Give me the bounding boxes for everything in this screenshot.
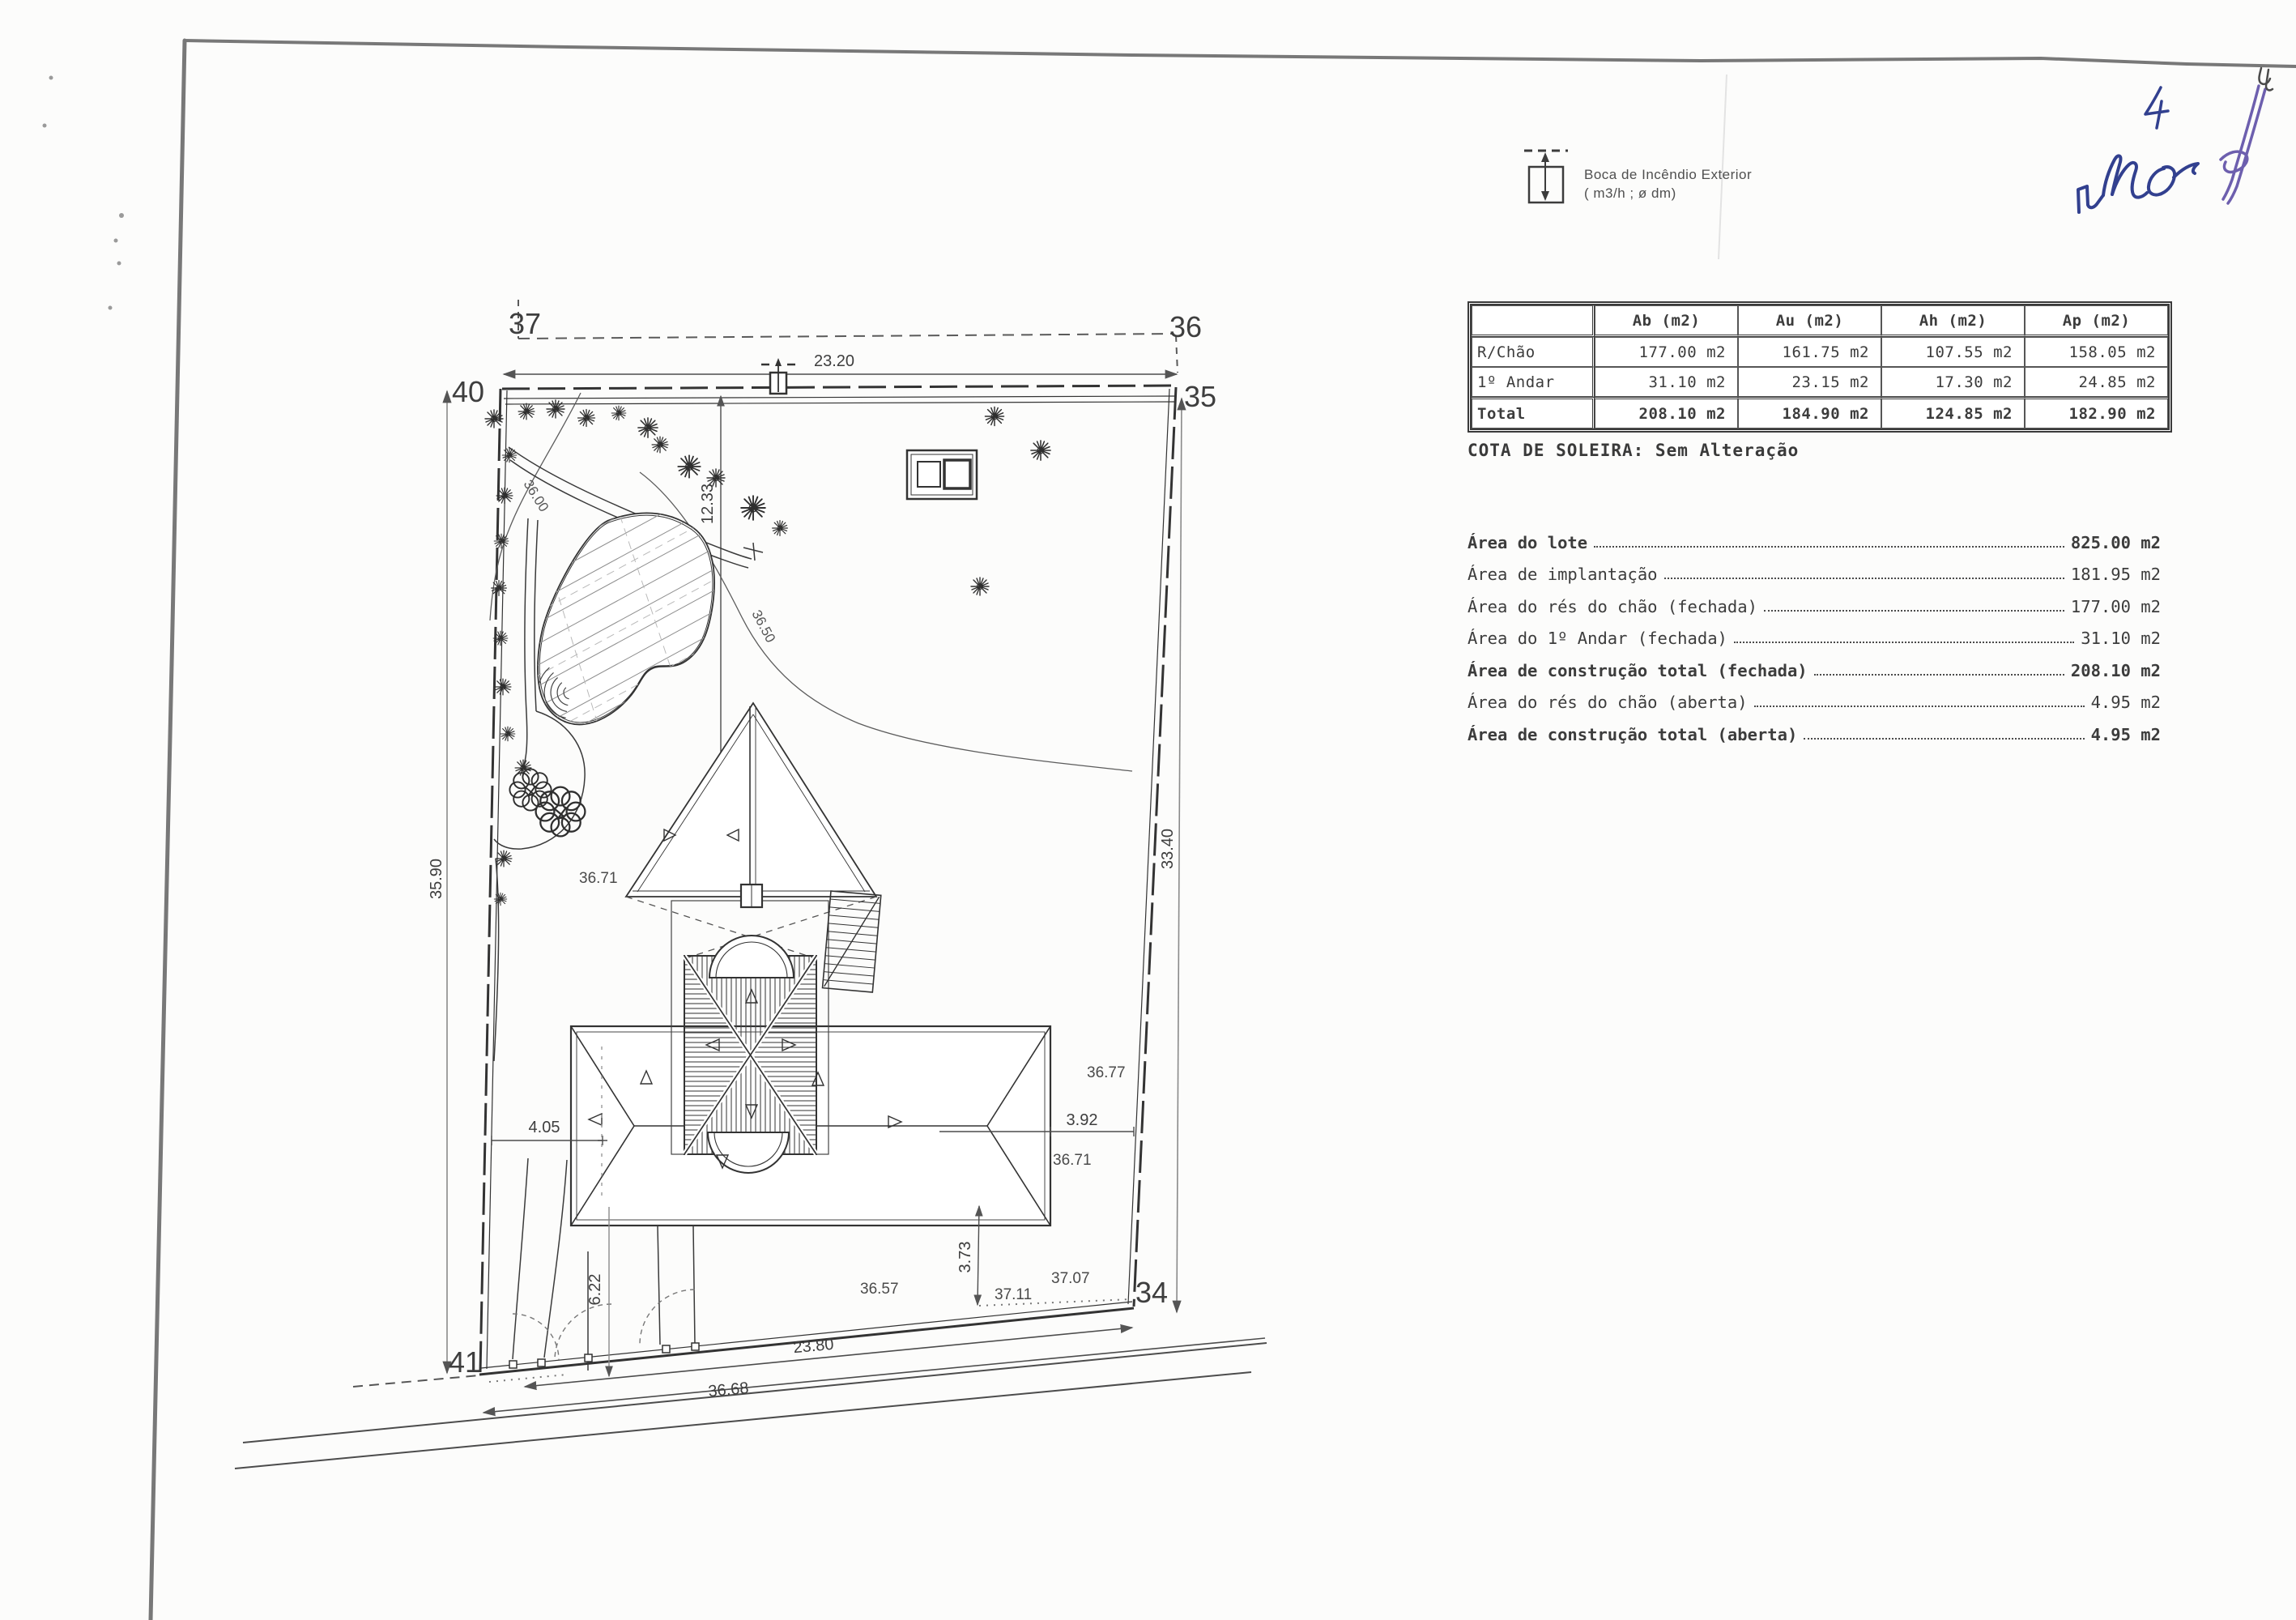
- area-label: Área do rés do chão (fechada): [1467, 597, 1757, 616]
- legend-line2: ( m3/h ; ø dm): [1584, 184, 1752, 202]
- spot-elevation: 36.77: [1087, 1064, 1126, 1081]
- dot-leader: [1734, 642, 2074, 643]
- dot-leader: [1594, 546, 2064, 548]
- dim-house-right: 3.92: [1067, 1111, 1098, 1129]
- dim-setback: 12.33: [699, 484, 717, 524]
- dim-left: 35.90: [428, 859, 445, 899]
- table-cell: 17.30 m2: [1881, 367, 2025, 397]
- area-value: 208.10 m2: [2071, 661, 2161, 680]
- area-label: Área do 1º Andar (fechada): [1467, 629, 1727, 648]
- table-header-cell: Au (m2): [1738, 305, 1881, 337]
- area-label: Área do lote: [1467, 533, 1587, 552]
- site-plan: 37 36 40 35 41 34 23.20 35.90 33.40 12.3…: [235, 300, 1267, 1469]
- dot-leader: [1804, 738, 2084, 740]
- dim-top: 23.20: [814, 352, 854, 370]
- area-value: 31.10 m2: [2081, 629, 2161, 648]
- area-label: Área de implantação: [1467, 565, 1658, 584]
- area-list-item: Área de implantação 181.95 m2: [1467, 552, 2161, 585]
- handwritten-marks: [2078, 68, 2273, 212]
- corner-label-41: 41: [449, 1345, 481, 1379]
- spot-elevation: 37.11: [995, 1286, 1032, 1303]
- tower-roof: [684, 956, 816, 1154]
- pen-corner-mark: [2259, 68, 2273, 90]
- table-cell: 107.55 m2: [1881, 337, 2025, 367]
- fire-hydrant-icon: [1524, 151, 1568, 202]
- dim-bottom: 23.80: [793, 1336, 835, 1358]
- table-header-cell: [1472, 305, 1595, 337]
- scanned-site-plan-page: { "page": { "background": "#fcfcfb", "pa…: [0, 0, 2296, 1620]
- contour-label-365: 36.50: [748, 607, 778, 645]
- table-cell: 158.05 m2: [2025, 337, 2168, 367]
- table-row-label: 1º Andar: [1472, 367, 1595, 397]
- spot-elevation: 36.57: [860, 1281, 899, 1298]
- dim-road: 36.68: [708, 1379, 750, 1401]
- table-header-cell: Ap (m2): [2025, 305, 2168, 337]
- staircase: [823, 891, 881, 992]
- area-label: Área do rés do chão (aberta): [1467, 693, 1748, 712]
- dot-leader: [1764, 610, 2064, 612]
- corner-label-36: 36: [1169, 310, 1202, 343]
- area-label: Área de construção total (fechada): [1467, 661, 1808, 680]
- area-value: 4.95 m2: [2091, 693, 2161, 712]
- area-list-item: Área de construção total (aberta) 4.95 m…: [1467, 712, 2161, 744]
- dot-leader: [1664, 578, 2064, 579]
- table-header-cell: Ah (m2): [1881, 305, 2025, 337]
- dim-house-bottom: 3.73: [956, 1242, 974, 1273]
- handwritten-note: [2078, 156, 2198, 212]
- table-row-label: Total: [1472, 397, 1595, 428]
- area-value: 825.00 m2: [2071, 533, 2161, 552]
- corner-label-34: 34: [1135, 1276, 1168, 1309]
- dot-leader: [1754, 706, 2085, 707]
- dim-gate: 6.22: [586, 1274, 604, 1306]
- annex-building: [907, 450, 977, 499]
- table-cell: 31.10 m2: [1595, 367, 1738, 397]
- table-cell: 124.85 m2: [1881, 397, 2025, 428]
- dim-right: 33.40: [1159, 829, 1177, 869]
- handwritten-page-number: [2145, 87, 2168, 128]
- area-list-item: Área do lote 825.00 m2: [1467, 520, 2161, 552]
- scan-specks: [43, 76, 125, 310]
- area-label: Área de construção total (aberta): [1467, 725, 1797, 744]
- cota-de-soleira: COTA DE SOLEIRA: Sem Alteração: [1467, 441, 1799, 460]
- table-cell: 184.90 m2: [1738, 397, 1881, 428]
- corner-label-40: 40: [452, 375, 484, 408]
- spot-elevation: 36.71: [1053, 1152, 1092, 1169]
- area-value: 177.00 m2: [2071, 597, 2161, 616]
- legend-line1: Boca de Incêndio Exterior: [1584, 165, 1752, 184]
- area-list-item: Área do rés do chão (fechada) 177.00 m2: [1467, 584, 2161, 616]
- site-plan-drawing: 37 36 40 35 41 34 23.20 35.90 33.40 12.3…: [0, 0, 2296, 1620]
- area-value: 181.95 m2: [2071, 565, 2161, 584]
- handwritten-paraph: [2221, 86, 2265, 203]
- table-cell: 182.90 m2: [2025, 397, 2168, 428]
- area-list: Área do lote 825.00 m2 Área de implantaç…: [1467, 520, 2161, 744]
- table-row-label: R/Chão: [1472, 337, 1595, 367]
- table-cell: 177.00 m2: [1595, 337, 1738, 367]
- areas-table: Ab (m2) Au (m2) Ah (m2) Ap (m2) R/Chão 1…: [1467, 301, 2172, 433]
- table-cell: 208.10 m2: [1595, 397, 1738, 428]
- dot-leader: [1814, 674, 2064, 676]
- table-cell: 161.75 m2: [1738, 337, 1881, 367]
- area-value: 4.95 m2: [2091, 725, 2161, 744]
- paper-edge: [151, 40, 2296, 1620]
- area-list-item: Área do 1º Andar (fechada) 31.10 m2: [1467, 616, 2161, 649]
- spot-elevation: 36.71: [579, 870, 618, 887]
- legend: Boca de Incêndio Exterior ( m3/h ; ø dm): [1584, 165, 1752, 202]
- area-list-item: Área do rés do chão (aberta) 4.95 m2: [1467, 680, 2161, 713]
- house-roof-plan: [571, 703, 1050, 1226]
- area-list-item: Área de construção total (fechada) 208.1…: [1467, 648, 2161, 680]
- table-header-cell: Ab (m2): [1595, 305, 1738, 337]
- corner-label-37: 37: [509, 307, 541, 340]
- table-cell: 23.15 m2: [1738, 367, 1881, 397]
- corner-label-35: 35: [1184, 380, 1216, 413]
- dim-house-left: 4.05: [529, 1119, 560, 1136]
- spot-elevation: 37.07: [1051, 1270, 1090, 1287]
- table-cell: 24.85 m2: [2025, 367, 2168, 397]
